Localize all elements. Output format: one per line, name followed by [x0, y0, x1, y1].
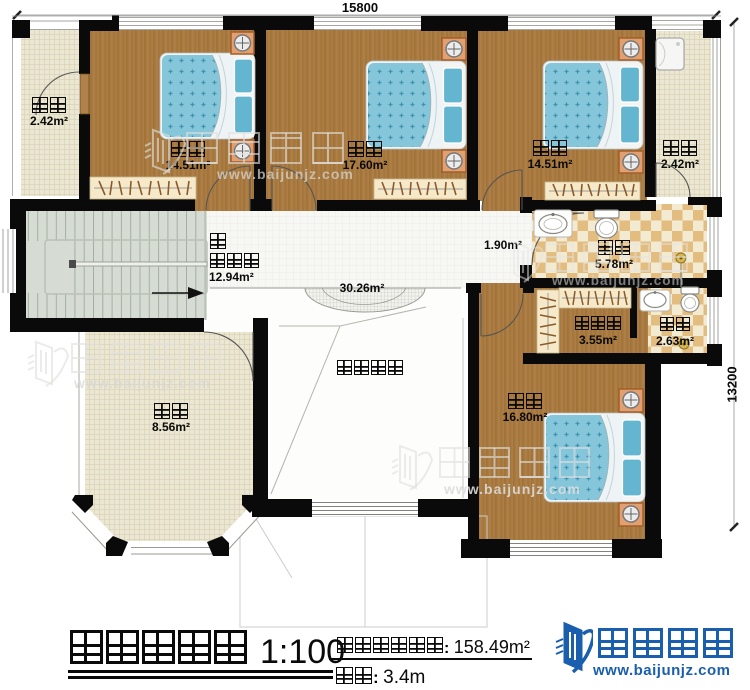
svg-text:www.baijunjz.com: www.baijunjz.com	[73, 375, 211, 391]
svg-text:www.baijunjz.com: www.baijunjz.com	[443, 481, 581, 497]
svg-text:www.baijunjz.com: www.baijunjz.com	[551, 273, 685, 288]
svg-text:www.baijunjz.com: www.baijunjz.com	[216, 166, 354, 182]
